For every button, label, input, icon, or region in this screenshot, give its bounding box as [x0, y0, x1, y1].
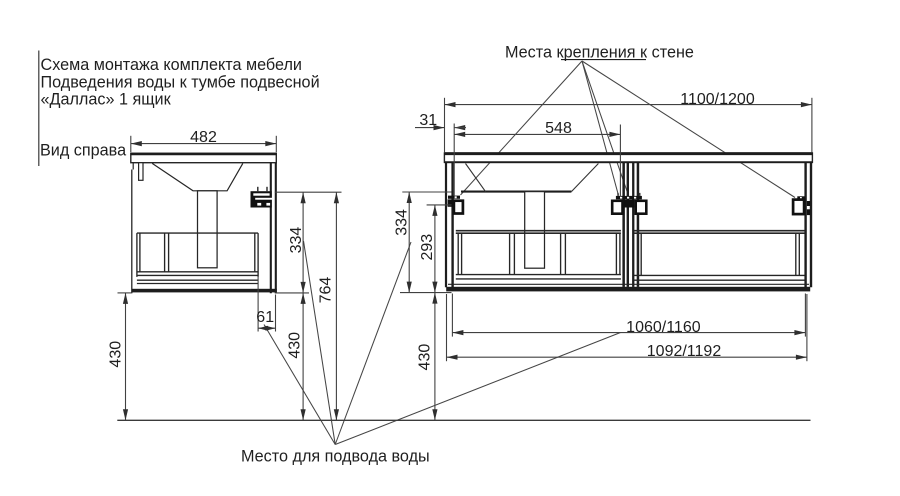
svg-text:Вид справа: Вид справа	[40, 142, 126, 160]
svg-text:293: 293	[419, 234, 436, 261]
svg-text:Схема монтажа комплекта мебели: Схема монтажа комплекта мебели	[41, 56, 302, 74]
svg-text:430: 430	[287, 332, 304, 359]
svg-text:Места крепления к стене: Места крепления к стене	[505, 44, 694, 62]
svg-text:334: 334	[288, 227, 305, 254]
svg-text:Место для подвода воды: Место для подвода воды	[241, 448, 430, 466]
svg-text:Подведения воды к тумбе подвес: Подведения воды к тумбе подвесной	[41, 73, 320, 91]
svg-text:«Даллас» 1 ящик: «Даллас» 1 ящик	[41, 91, 172, 109]
svg-text:1092/1192: 1092/1192	[647, 343, 722, 360]
svg-text:430: 430	[108, 341, 125, 368]
svg-text:1100/1200: 1100/1200	[680, 91, 755, 108]
svg-text:548: 548	[545, 120, 572, 137]
svg-text:334: 334	[393, 209, 410, 236]
svg-text:764: 764	[318, 277, 335, 304]
svg-text:430: 430	[416, 344, 433, 371]
svg-text:482: 482	[190, 129, 217, 146]
svg-text:1060/1160: 1060/1160	[626, 319, 701, 336]
svg-text:31: 31	[419, 112, 437, 129]
svg-text:61: 61	[256, 309, 274, 326]
